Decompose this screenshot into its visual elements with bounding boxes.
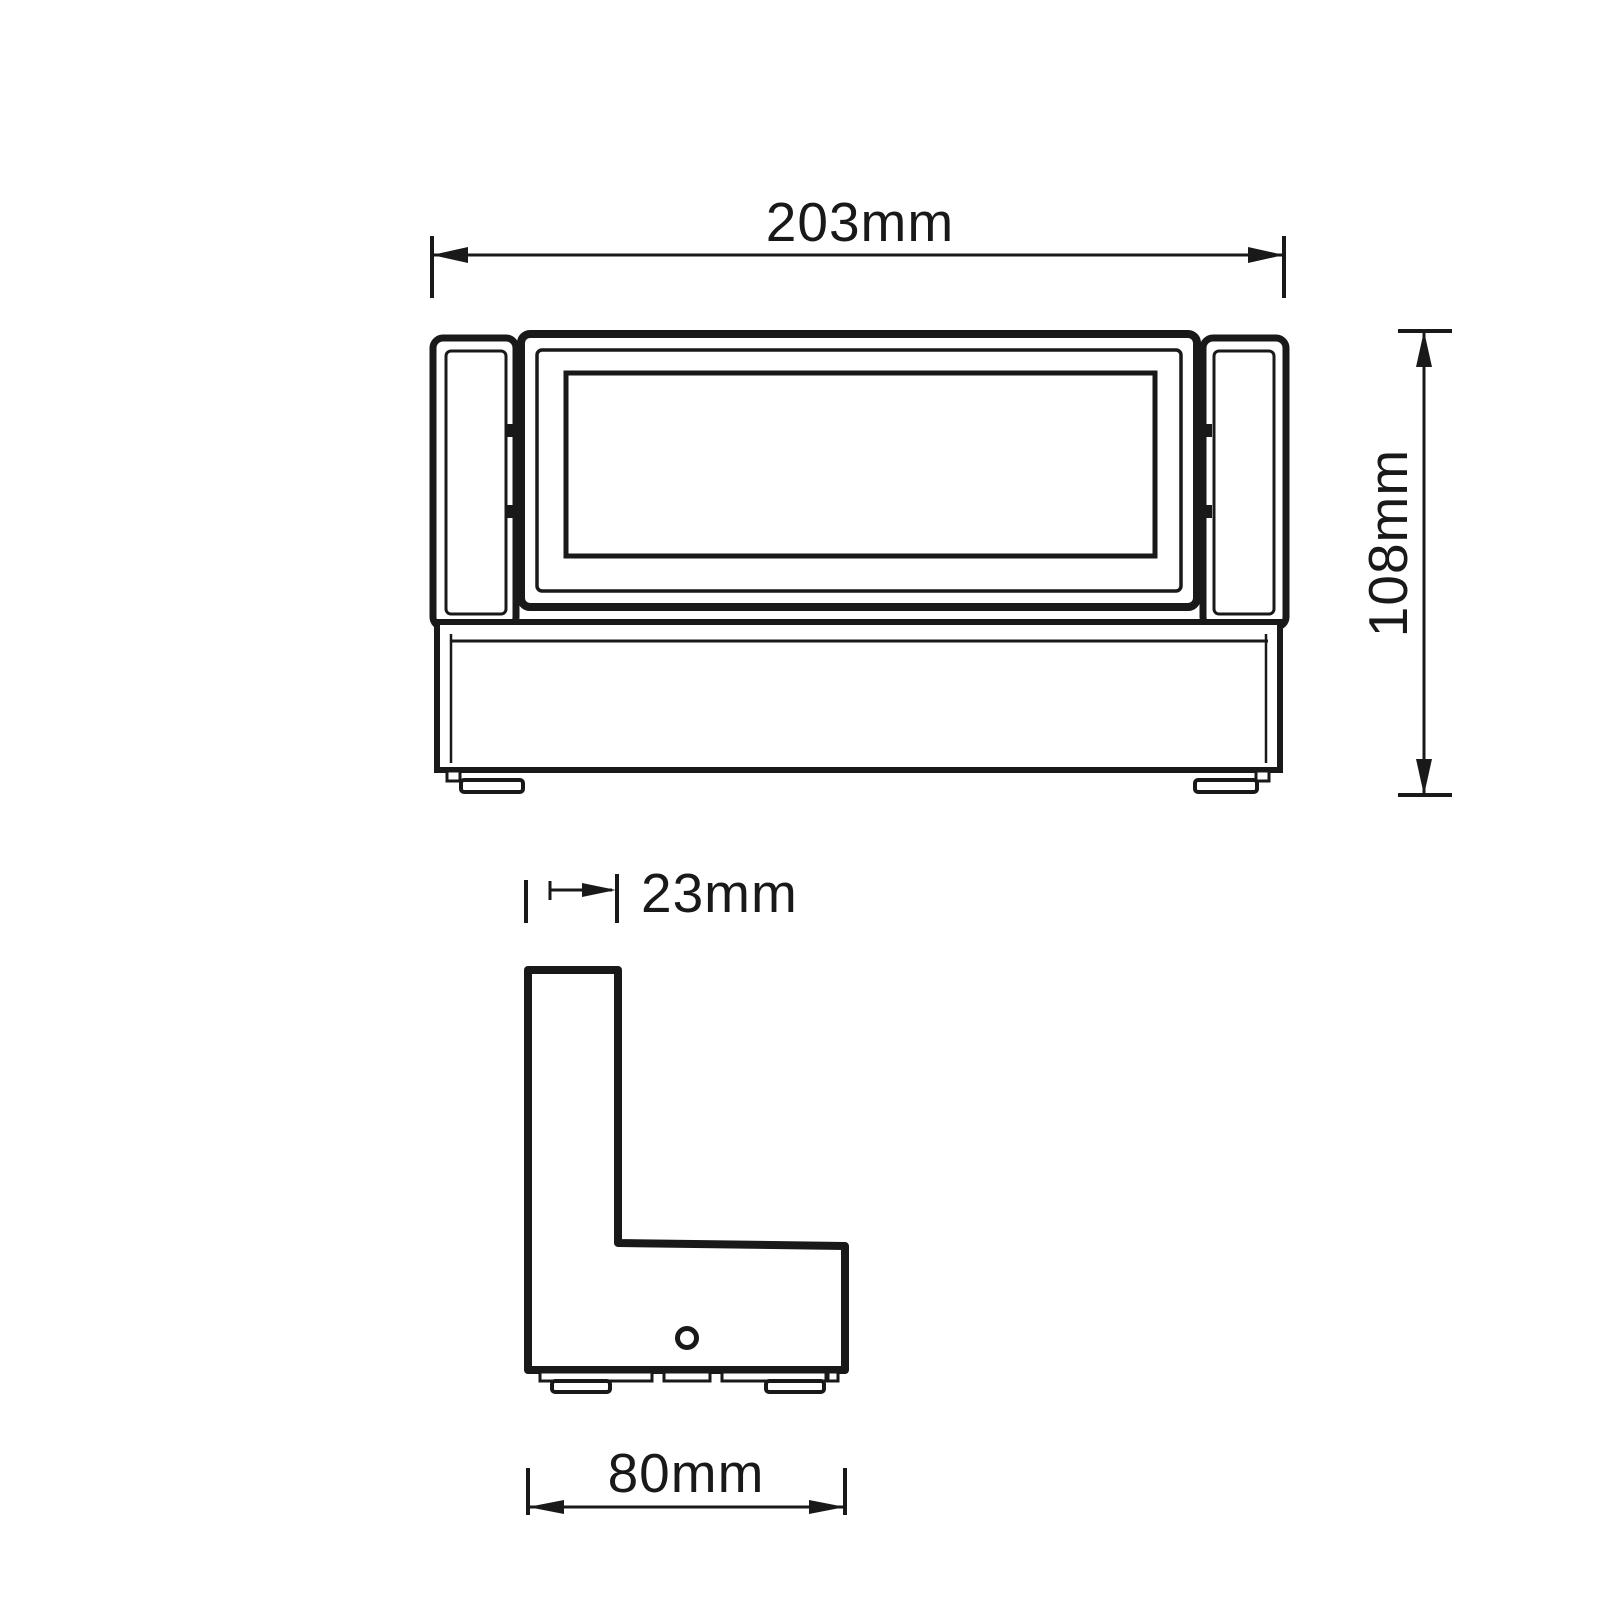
front-clip-tab <box>1198 424 1212 437</box>
front-base-notch <box>1256 771 1269 781</box>
dimension-arrow <box>1248 247 1284 263</box>
side-foot <box>766 1381 824 1392</box>
dimension-arrow <box>432 247 468 263</box>
dimension-arrow <box>1416 331 1432 367</box>
front-clip-tab <box>506 424 520 437</box>
front-foot <box>1195 780 1257 792</box>
side-mounting-hole <box>678 1329 697 1348</box>
side-base-notch <box>828 1372 838 1381</box>
dimension-overall-width: 203mm <box>432 191 1284 298</box>
side-base-lip <box>664 1372 710 1381</box>
dimension-arrow <box>1416 759 1432 795</box>
technical-drawing-page: 203mm 108mm 23mm 80mm <box>0 0 1600 1600</box>
technical-drawing-canvas: 203mm 108mm 23mm 80mm <box>0 0 1600 1600</box>
side-view <box>528 970 845 1392</box>
dimension-overall-height: 108mm <box>1357 331 1452 795</box>
front-view <box>433 334 1286 792</box>
dimension-bracket-depth: 23mm <box>526 862 798 924</box>
dimension-overall-width-label: 203mm <box>766 191 954 253</box>
dimension-bracket-depth-label: 23mm <box>641 862 798 924</box>
dimension-base-depth: 80mm <box>528 1442 845 1515</box>
dimension-base-depth-label: 80mm <box>608 1442 765 1504</box>
side-profile-outline <box>528 970 845 1370</box>
front-base-notch <box>447 771 460 781</box>
side-foot <box>552 1381 610 1392</box>
dimension-overall-height-label: 108mm <box>1357 449 1419 637</box>
dimension-arrow <box>582 883 616 897</box>
front-diffuser-panel <box>566 373 1155 556</box>
front-clip-tab <box>506 505 520 518</box>
front-clip-tab <box>1198 505 1212 518</box>
dimension-arrow <box>809 1500 845 1514</box>
dimension-arrow <box>528 1500 564 1514</box>
front-foot <box>461 780 523 792</box>
front-base <box>437 622 1280 770</box>
